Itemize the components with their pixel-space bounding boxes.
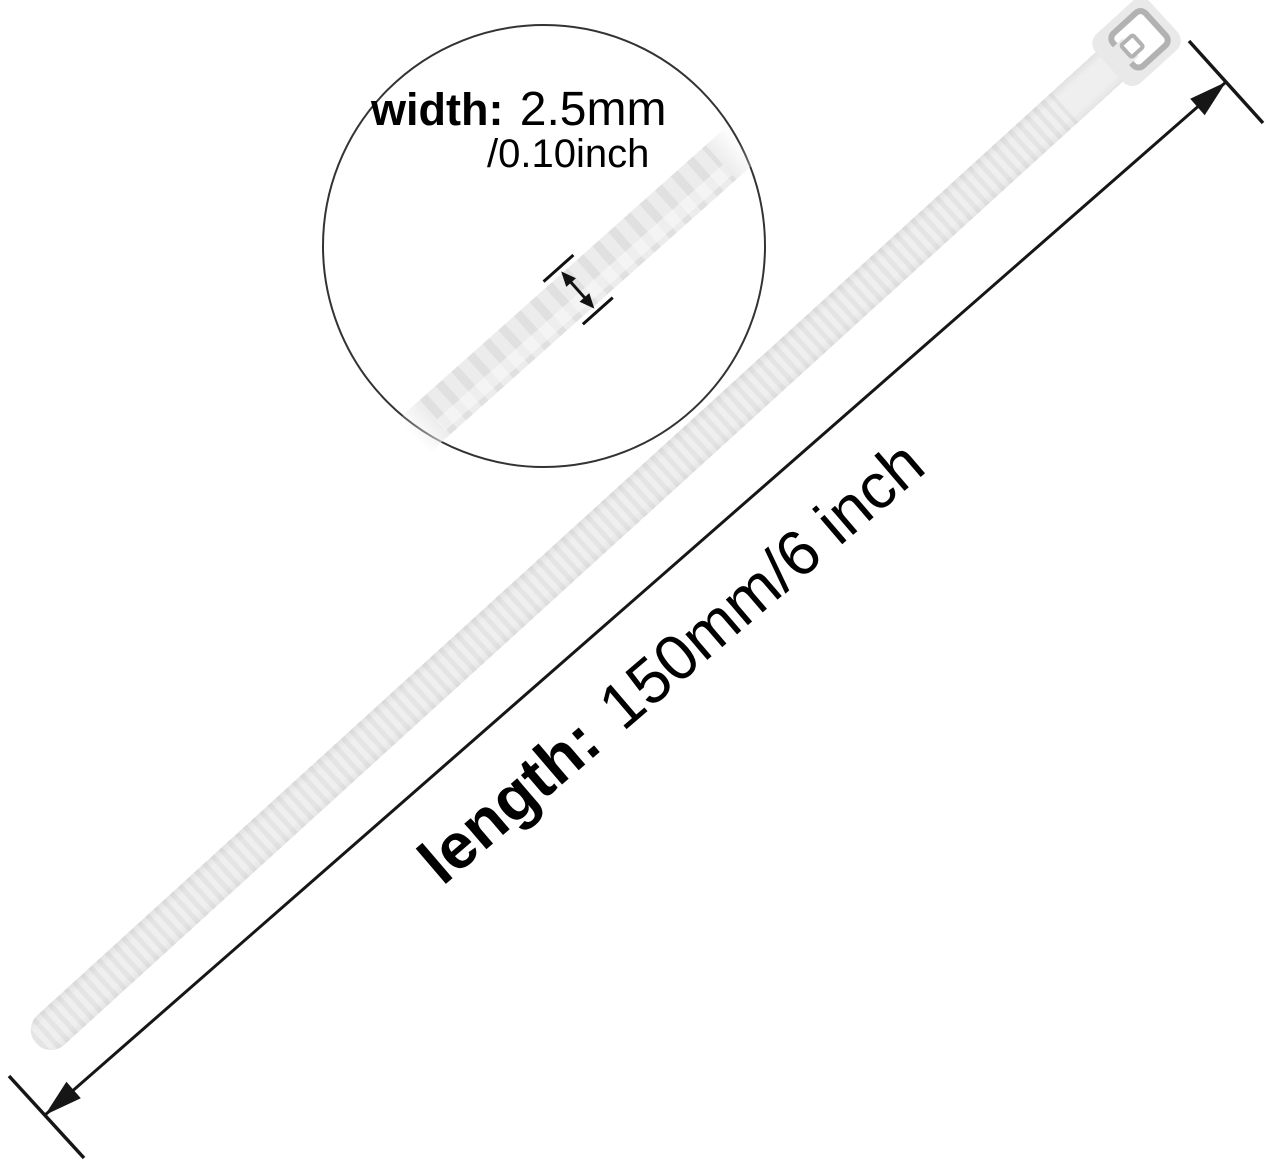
width-value-mm: 2.5mm xyxy=(520,83,667,136)
cable-tie-dimension-diagram: width:2.5mm /0.10inch length:150mm/6 inc… xyxy=(0,0,1270,1165)
width-value-inch: /0.10inch xyxy=(487,134,649,174)
cable-tie-strap-shading xyxy=(23,30,1148,1058)
width-annotation: width:2.5mm xyxy=(371,86,666,134)
width-label: width: xyxy=(371,84,503,135)
length-tick-bottom xyxy=(9,1076,84,1158)
